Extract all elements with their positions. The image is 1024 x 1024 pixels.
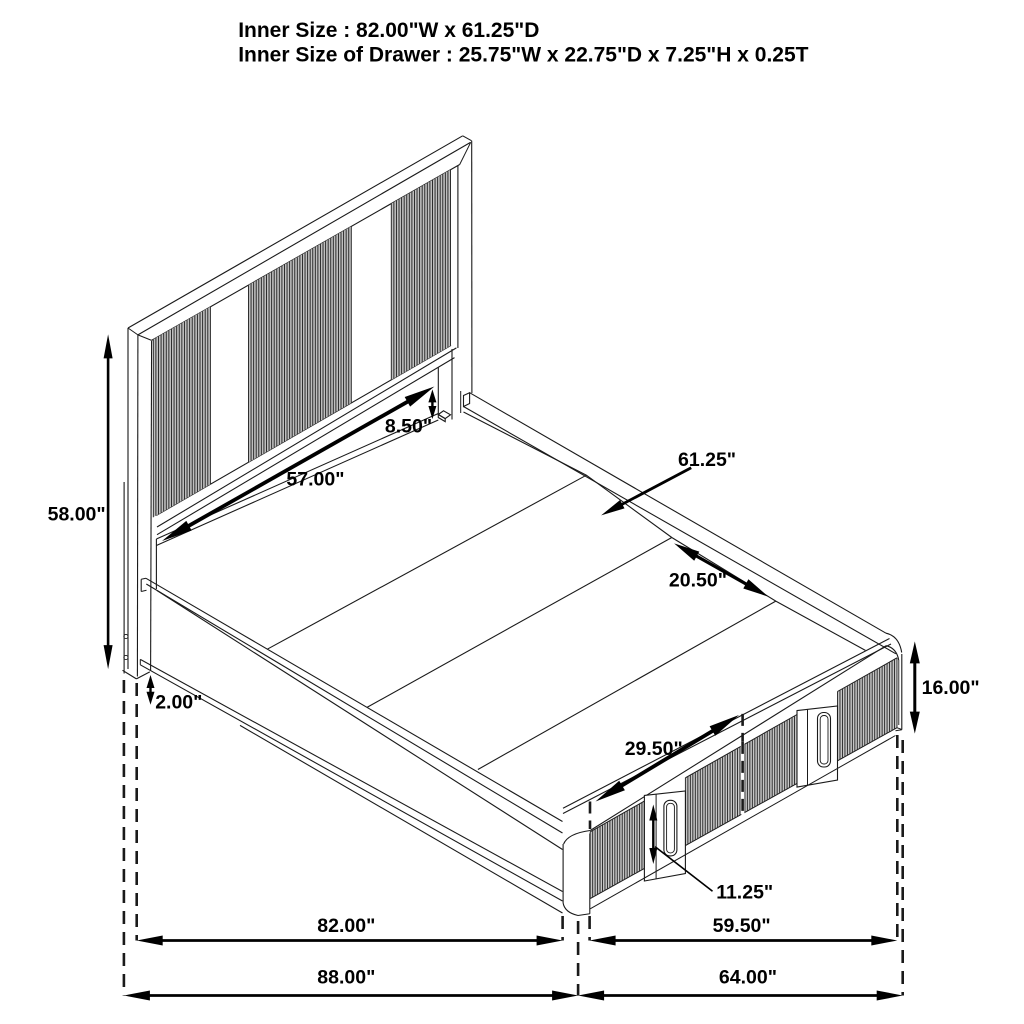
svg-text:64.00": 64.00" [719, 966, 777, 988]
svg-text:Inner Size : 82.00"W x 61.25"D: Inner Size : 82.00"W x 61.25"D [238, 19, 539, 42]
svg-text:59.50": 59.50" [713, 915, 771, 937]
svg-text:2.00": 2.00" [155, 692, 202, 714]
svg-text:88.00": 88.00" [317, 966, 375, 988]
svg-text:8.50": 8.50" [385, 416, 432, 438]
svg-text:82.00": 82.00" [317, 915, 375, 937]
svg-text:Inner Size of Drawer : 25.75"W: Inner Size of Drawer : 25.75"W x 22.75"D… [238, 43, 808, 66]
svg-text:11.25": 11.25" [716, 882, 773, 904]
svg-text:29.50": 29.50" [625, 738, 683, 760]
svg-text:57.00": 57.00" [286, 469, 344, 491]
svg-text:58.00": 58.00" [48, 504, 106, 526]
svg-text:16.00": 16.00" [922, 677, 980, 699]
svg-text:61.25": 61.25" [678, 449, 736, 471]
svg-text:20.50": 20.50" [669, 569, 727, 591]
